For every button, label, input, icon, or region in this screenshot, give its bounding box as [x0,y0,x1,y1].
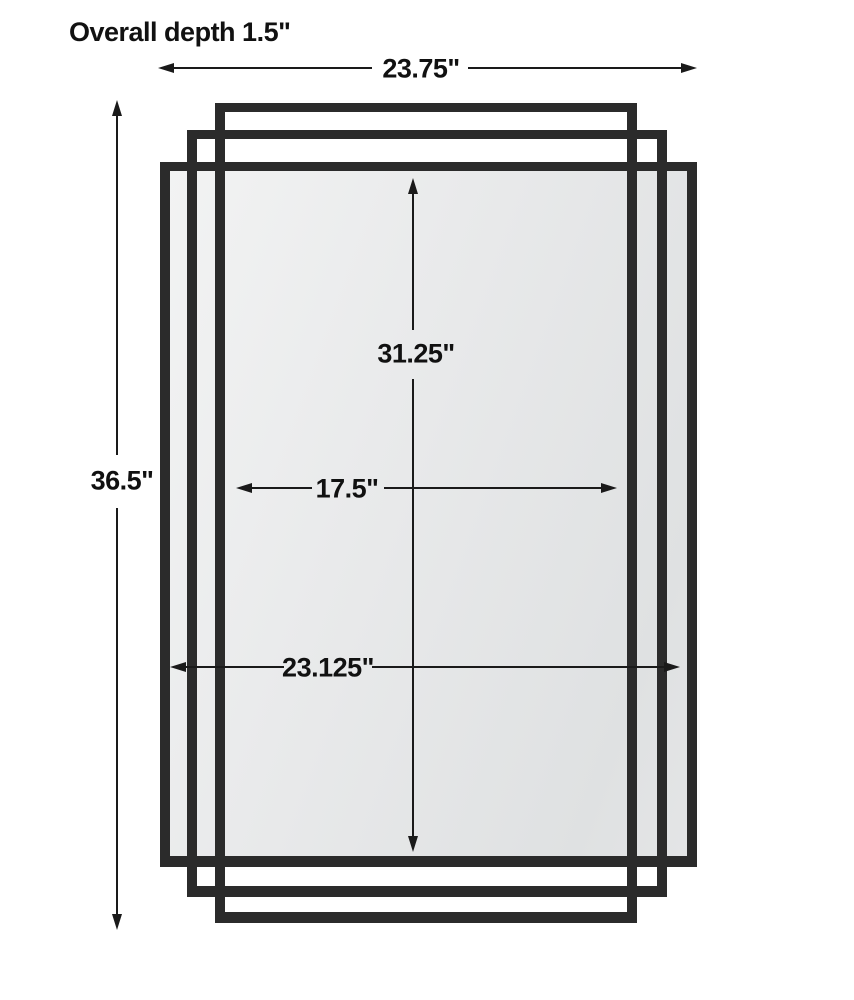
dim-line [116,508,118,916]
arrow-down-icon [408,836,418,852]
diagram-canvas: Overall depth 1.5" 23.75" 36.5" 31.25" 1… [0,0,854,1000]
arrow-right-icon [664,662,680,672]
dim-line [116,114,118,455]
mirror-frame-front [215,103,637,923]
dim-mirror-width-label: 23.125" [282,655,374,682]
arrow-right-icon [681,63,697,73]
dim-line [384,487,603,489]
arrow-down-icon [112,914,122,930]
dim-line [172,67,372,69]
dim-line [184,666,284,668]
dim-overall-height-label: 36.5" [91,468,154,495]
dim-line [412,379,414,838]
dim-line [412,192,414,330]
dim-line [372,666,666,668]
dim-inner-width-label: 17.5" [316,476,379,503]
dim-mirror-height-label: 31.25" [377,341,454,368]
dim-line [468,67,683,69]
overall-depth-label: Overall depth 1.5" [69,18,290,48]
dim-line [250,487,312,489]
arrow-right-icon [601,483,617,493]
dim-overall-width-label: 23.75" [382,56,459,83]
